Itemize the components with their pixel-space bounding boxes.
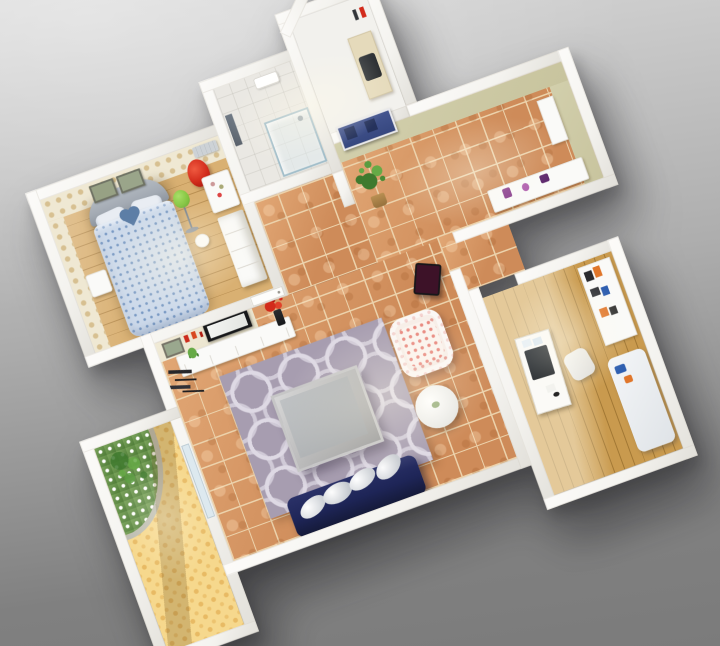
apartment-plan — [0, 0, 720, 646]
render-backdrop — [0, 0, 720, 646]
dark-dining-chair — [413, 263, 441, 296]
